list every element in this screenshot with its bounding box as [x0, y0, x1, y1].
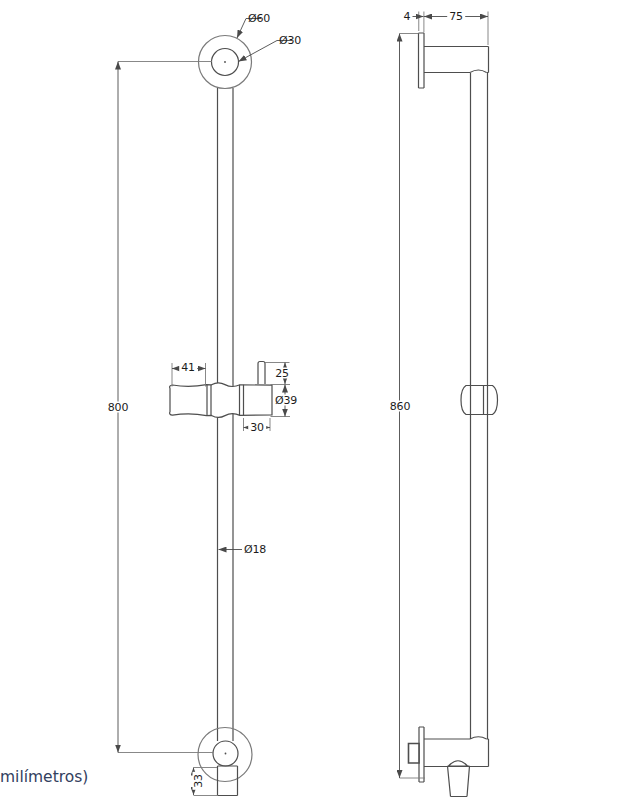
top-mount	[199, 36, 252, 89]
dim-label-dia18: Ø18	[244, 544, 266, 555]
side-dimension-lines	[400, 17, 489, 779]
holder-hook	[258, 362, 265, 385]
side-dimensions	[400, 12, 489, 779]
front-view	[118, 19, 292, 796]
dim-label-4: 4	[404, 11, 411, 22]
bottom-mount	[198, 728, 252, 796]
dim-label-dia60: Ø60	[248, 13, 270, 24]
units-note: milímetros)	[0, 767, 88, 787]
dim-label-860: 860	[388, 401, 412, 412]
dim-label-800: 800	[106, 402, 130, 413]
dim-label-dia39: Ø39	[273, 395, 299, 406]
side-view	[400, 12, 498, 797]
slider-side	[461, 386, 498, 415]
dim-label-75: 75	[447, 11, 465, 22]
top-bracket-side	[419, 33, 489, 88]
slide-bar-side	[471, 73, 488, 739]
dim-label-dia30: Ø30	[279, 35, 301, 46]
dim-label-33: 33	[193, 772, 204, 790]
page: Ø60 Ø30 800 41 25 Ø39 30 Ø18 33 4 75 860…	[0, 0, 618, 800]
hose-outlet	[448, 761, 470, 797]
technical-drawing	[0, 0, 618, 800]
dim-label-25: 25	[273, 368, 291, 379]
dim-label-30: 30	[248, 422, 266, 433]
bottom-bracket-side	[409, 727, 489, 797]
supply-stub	[409, 744, 420, 764]
dim-label-41: 41	[179, 362, 197, 373]
